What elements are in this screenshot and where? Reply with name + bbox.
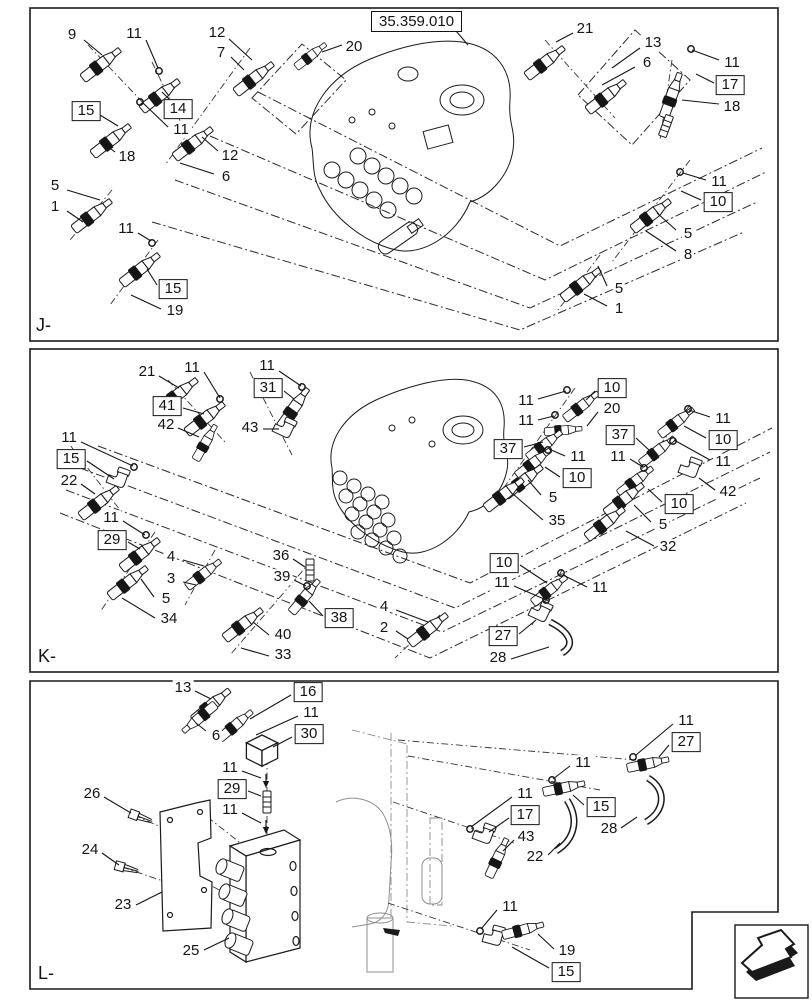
callout-l-25: 25 [181, 943, 202, 959]
callout-j-15: 15 [72, 101, 101, 121]
panel-l-border [30, 681, 778, 989]
callout-k-2: 2 [378, 620, 390, 636]
callout-k-21: 21 [137, 364, 158, 380]
callout-j-18: 18 [117, 149, 138, 165]
callout-l-16: 16 [294, 682, 323, 702]
callout-k-37: 37 [606, 425, 635, 445]
callout-k-11: 11 [608, 449, 628, 465]
callout-l-24: 24 [80, 842, 101, 858]
callout-j-15: 15 [159, 279, 188, 299]
callout-l-28: 28 [599, 821, 620, 837]
callout-j-9: 9 [66, 27, 78, 43]
callout-l-30: 30 [295, 724, 324, 744]
callout-j-20: 20 [344, 39, 365, 55]
callout-k-11: 11 [516, 413, 536, 429]
callout-l-29: 29 [218, 779, 247, 799]
callout-l-26: 26 [82, 786, 103, 802]
callout-l-11: 11 [573, 755, 593, 771]
callout-k-10: 10 [665, 494, 694, 514]
callout-l-15: 15 [587, 797, 616, 817]
panel-j-fittings [70, 40, 694, 304]
callout-l-15: 15 [552, 962, 581, 982]
callout-k-28: 28 [488, 650, 509, 666]
callout-k-5: 5 [547, 490, 559, 506]
callout-j-11: 11 [116, 221, 136, 237]
callout-k-11: 11 [182, 360, 202, 376]
callout-k-11: 11 [568, 449, 588, 465]
callout-j-11: 11 [709, 174, 729, 190]
callout-j-6: 6 [641, 55, 653, 71]
callout-k-5: 5 [657, 517, 669, 533]
callout-j-18: 18 [722, 99, 743, 115]
callout-j-1: 1 [613, 301, 625, 317]
callout-k-27: 27 [489, 626, 518, 646]
callout-j-13: 13 [643, 35, 664, 51]
callout-l-22: 22 [525, 849, 546, 865]
callout-j-21: 21 [575, 21, 596, 37]
callout-k-11: 11 [257, 358, 277, 374]
callout-k-5: 5 [160, 591, 172, 607]
callout-k-11: 11 [590, 580, 610, 596]
callout-l-11: 11 [220, 760, 240, 776]
callout-j-5: 5 [682, 226, 694, 242]
callout-k-39: 39 [272, 569, 293, 585]
panel-label-j: J- [36, 315, 51, 336]
callout-k-36: 36 [271, 548, 292, 564]
callout-l-11: 11 [515, 786, 535, 802]
callout-l-11: 11 [220, 802, 240, 818]
callout-j-11: 11 [171, 122, 191, 138]
callout-k-33: 33 [273, 647, 294, 663]
panel-j-border [30, 8, 778, 341]
callout-k-29: 29 [98, 530, 127, 550]
callout-j-6: 6 [220, 169, 232, 185]
callout-j-14: 14 [164, 99, 193, 119]
callout-j-11: 11 [124, 26, 144, 42]
nav-arrow-icon[interactable] [735, 925, 808, 998]
callout-j-11: 11 [722, 55, 742, 71]
callout-k-4: 4 [378, 599, 390, 615]
callout-k-10: 10 [490, 553, 519, 573]
callout-l-27: 27 [672, 732, 701, 752]
callout-k-31: 31 [254, 378, 283, 398]
callout-j-12: 12 [220, 148, 241, 164]
callout-k-20: 20 [602, 401, 623, 417]
callout-l-23: 23 [113, 897, 134, 913]
callout-l-11: 11 [301, 705, 321, 721]
callout-l-11: 11 [676, 713, 696, 729]
callout-k-4: 4 [165, 549, 177, 565]
callout-j-1: 1 [49, 199, 61, 215]
panel-label-k: K- [38, 646, 56, 667]
parts-diagram-page: 35.359.010 J- K- L- 91112715141118126202… [0, 0, 812, 1000]
callout-k-37: 37 [494, 439, 523, 459]
callout-l-6: 6 [210, 728, 222, 744]
callout-l-43: 43 [516, 829, 537, 845]
callout-j-19: 19 [165, 303, 186, 319]
callout-j-17: 17 [716, 75, 745, 95]
callout-k-3: 3 [165, 571, 177, 587]
panel-l-illustration [114, 685, 670, 972]
callout-k-11: 11 [492, 575, 512, 591]
callout-k-42: 42 [718, 484, 739, 500]
callout-k-11: 11 [713, 411, 733, 427]
manifold-block [214, 830, 300, 962]
callout-k-15: 15 [57, 449, 86, 469]
callout-l-17: 17 [511, 805, 540, 825]
figure-reference-link[interactable]: 35.359.010 [371, 11, 462, 32]
callout-k-10: 10 [709, 430, 738, 450]
callout-k-43: 43 [240, 420, 261, 436]
callout-j-7: 7 [215, 45, 227, 61]
callout-j-8: 8 [682, 247, 694, 263]
callout-k-42: 42 [156, 417, 177, 433]
callout-k-10: 10 [598, 378, 627, 398]
callout-k-41: 41 [153, 396, 182, 416]
callout-j-5: 5 [613, 281, 625, 297]
callout-l-13: 13 [173, 680, 194, 696]
callout-k-10: 10 [563, 468, 592, 488]
callout-j-12: 12 [207, 25, 228, 41]
callout-k-11: 11 [516, 393, 536, 409]
callout-k-38: 38 [325, 608, 354, 628]
callout-k-32: 32 [658, 539, 679, 555]
callout-k-34: 34 [159, 611, 180, 627]
callout-l-11: 11 [500, 899, 520, 915]
callout-k-11: 11 [59, 430, 79, 446]
callout-j-5: 5 [49, 178, 61, 194]
callout-l-19: 19 [557, 943, 578, 959]
panel-label-l: L- [38, 963, 54, 984]
callout-k-11: 11 [101, 510, 121, 526]
callout-j-10: 10 [704, 192, 733, 212]
callout-k-22: 22 [59, 473, 80, 489]
callout-k-35: 35 [547, 513, 568, 529]
callout-k-11: 11 [713, 454, 733, 470]
callout-k-40: 40 [273, 627, 294, 643]
